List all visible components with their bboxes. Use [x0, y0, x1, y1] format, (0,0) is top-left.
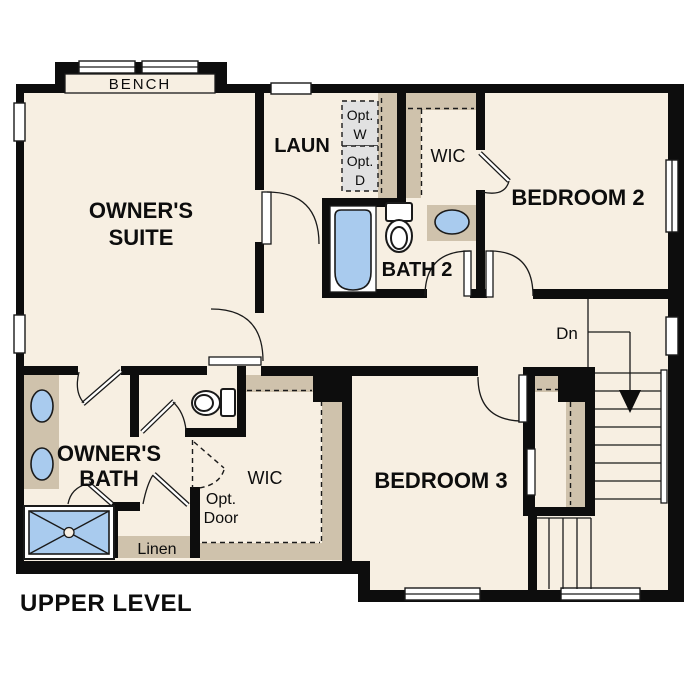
owners-bath-label-line2: BATH [79, 466, 138, 491]
opt-dryer-label-line2: D [355, 172, 365, 188]
opt-dryer-label-line1: Opt. [347, 153, 373, 169]
bathtub [330, 206, 376, 292]
closet-chase [558, 370, 587, 402]
sink [31, 390, 53, 422]
window [271, 83, 311, 94]
sink [31, 448, 53, 480]
window [14, 103, 25, 141]
toilet [192, 389, 235, 416]
stairs-down-label: Dn [556, 324, 578, 343]
shower [24, 506, 114, 559]
window [666, 317, 678, 355]
owners-suite-label-line2: SUITE [109, 225, 174, 250]
owners-suite-label-line1: OWNER'S [89, 198, 193, 223]
opt-washer-label-line2: W [353, 126, 367, 142]
toilet [386, 203, 412, 252]
wic-upper-shelf-left [406, 110, 421, 198]
wic-lower-shelf-top [246, 375, 313, 392]
bedroom3-label: BEDROOM 3 [374, 468, 507, 493]
wic-lower-shelf-bottom [200, 543, 342, 560]
opt-washer-label-line1: Opt. [347, 107, 373, 123]
shower-drain [64, 528, 74, 538]
bath2-label: BATH 2 [382, 259, 453, 281]
linen-label: Linen [137, 541, 176, 558]
sink [435, 210, 469, 234]
closet-shelf-right [566, 402, 585, 507]
plan-title: UPPER LEVEL [20, 590, 192, 617]
laundry-label: LAUN [274, 135, 330, 157]
wic-upper-shelf-top [406, 93, 476, 110]
stair-stringer [661, 370, 667, 503]
wic-lower-chase [313, 373, 342, 402]
wic-lower-label: WIC [248, 468, 283, 488]
window [14, 315, 25, 353]
opt-door-label-line2: Door [204, 510, 239, 527]
wic-lower-shelf-right [322, 398, 342, 545]
owners-bath-label-line1: OWNER'S [57, 441, 161, 466]
bedroom2-label: BEDROOM 2 [511, 185, 644, 210]
floor-plan-page: BENCH OWNER'S SUITE LAUN Opt. W Opt. D W… [0, 0, 687, 687]
opt-door-label-line1: Opt. [206, 491, 236, 508]
floor-plan-drawing: BENCH OWNER'S SUITE LAUN Opt. W Opt. D W… [0, 0, 687, 687]
wic-upper-label: WIC [431, 146, 466, 166]
suite-laundry-wall [255, 93, 264, 190]
bench-label: BENCH [109, 76, 172, 93]
